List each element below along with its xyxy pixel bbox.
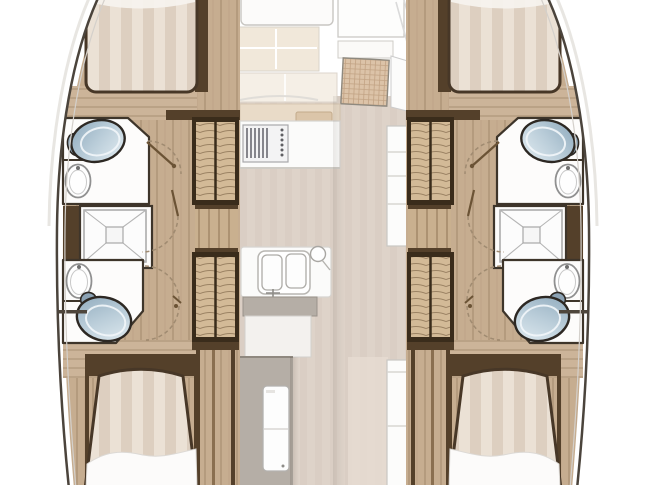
galley-stove: [243, 125, 288, 162]
starboard-hull: [406, 0, 597, 485]
cream-cushions: [234, 27, 337, 102]
aft-floor-light-strip: [348, 357, 388, 485]
sideboard-front: [245, 316, 311, 357]
floor-shadow: [333, 96, 345, 485]
floorplan-canvas: [0, 0, 646, 485]
double-sink: [258, 251, 310, 297]
companionway-door: [263, 386, 289, 471]
starboard-hull-mirror: [406, 0, 597, 485]
galley: [240, 104, 340, 168]
forward-seat-right: [338, 0, 404, 37]
forward-seat: [241, 0, 333, 25]
saloon: [234, 0, 414, 485]
panel-shadow: [290, 357, 299, 485]
rattan-dining-table: [341, 58, 389, 106]
catamaran-floorplan: [0, 0, 646, 485]
port-hull: [49, 0, 240, 485]
sideboard-band: [243, 297, 317, 316]
faucet-knob: [311, 247, 326, 262]
seat-back-right: [338, 41, 393, 58]
